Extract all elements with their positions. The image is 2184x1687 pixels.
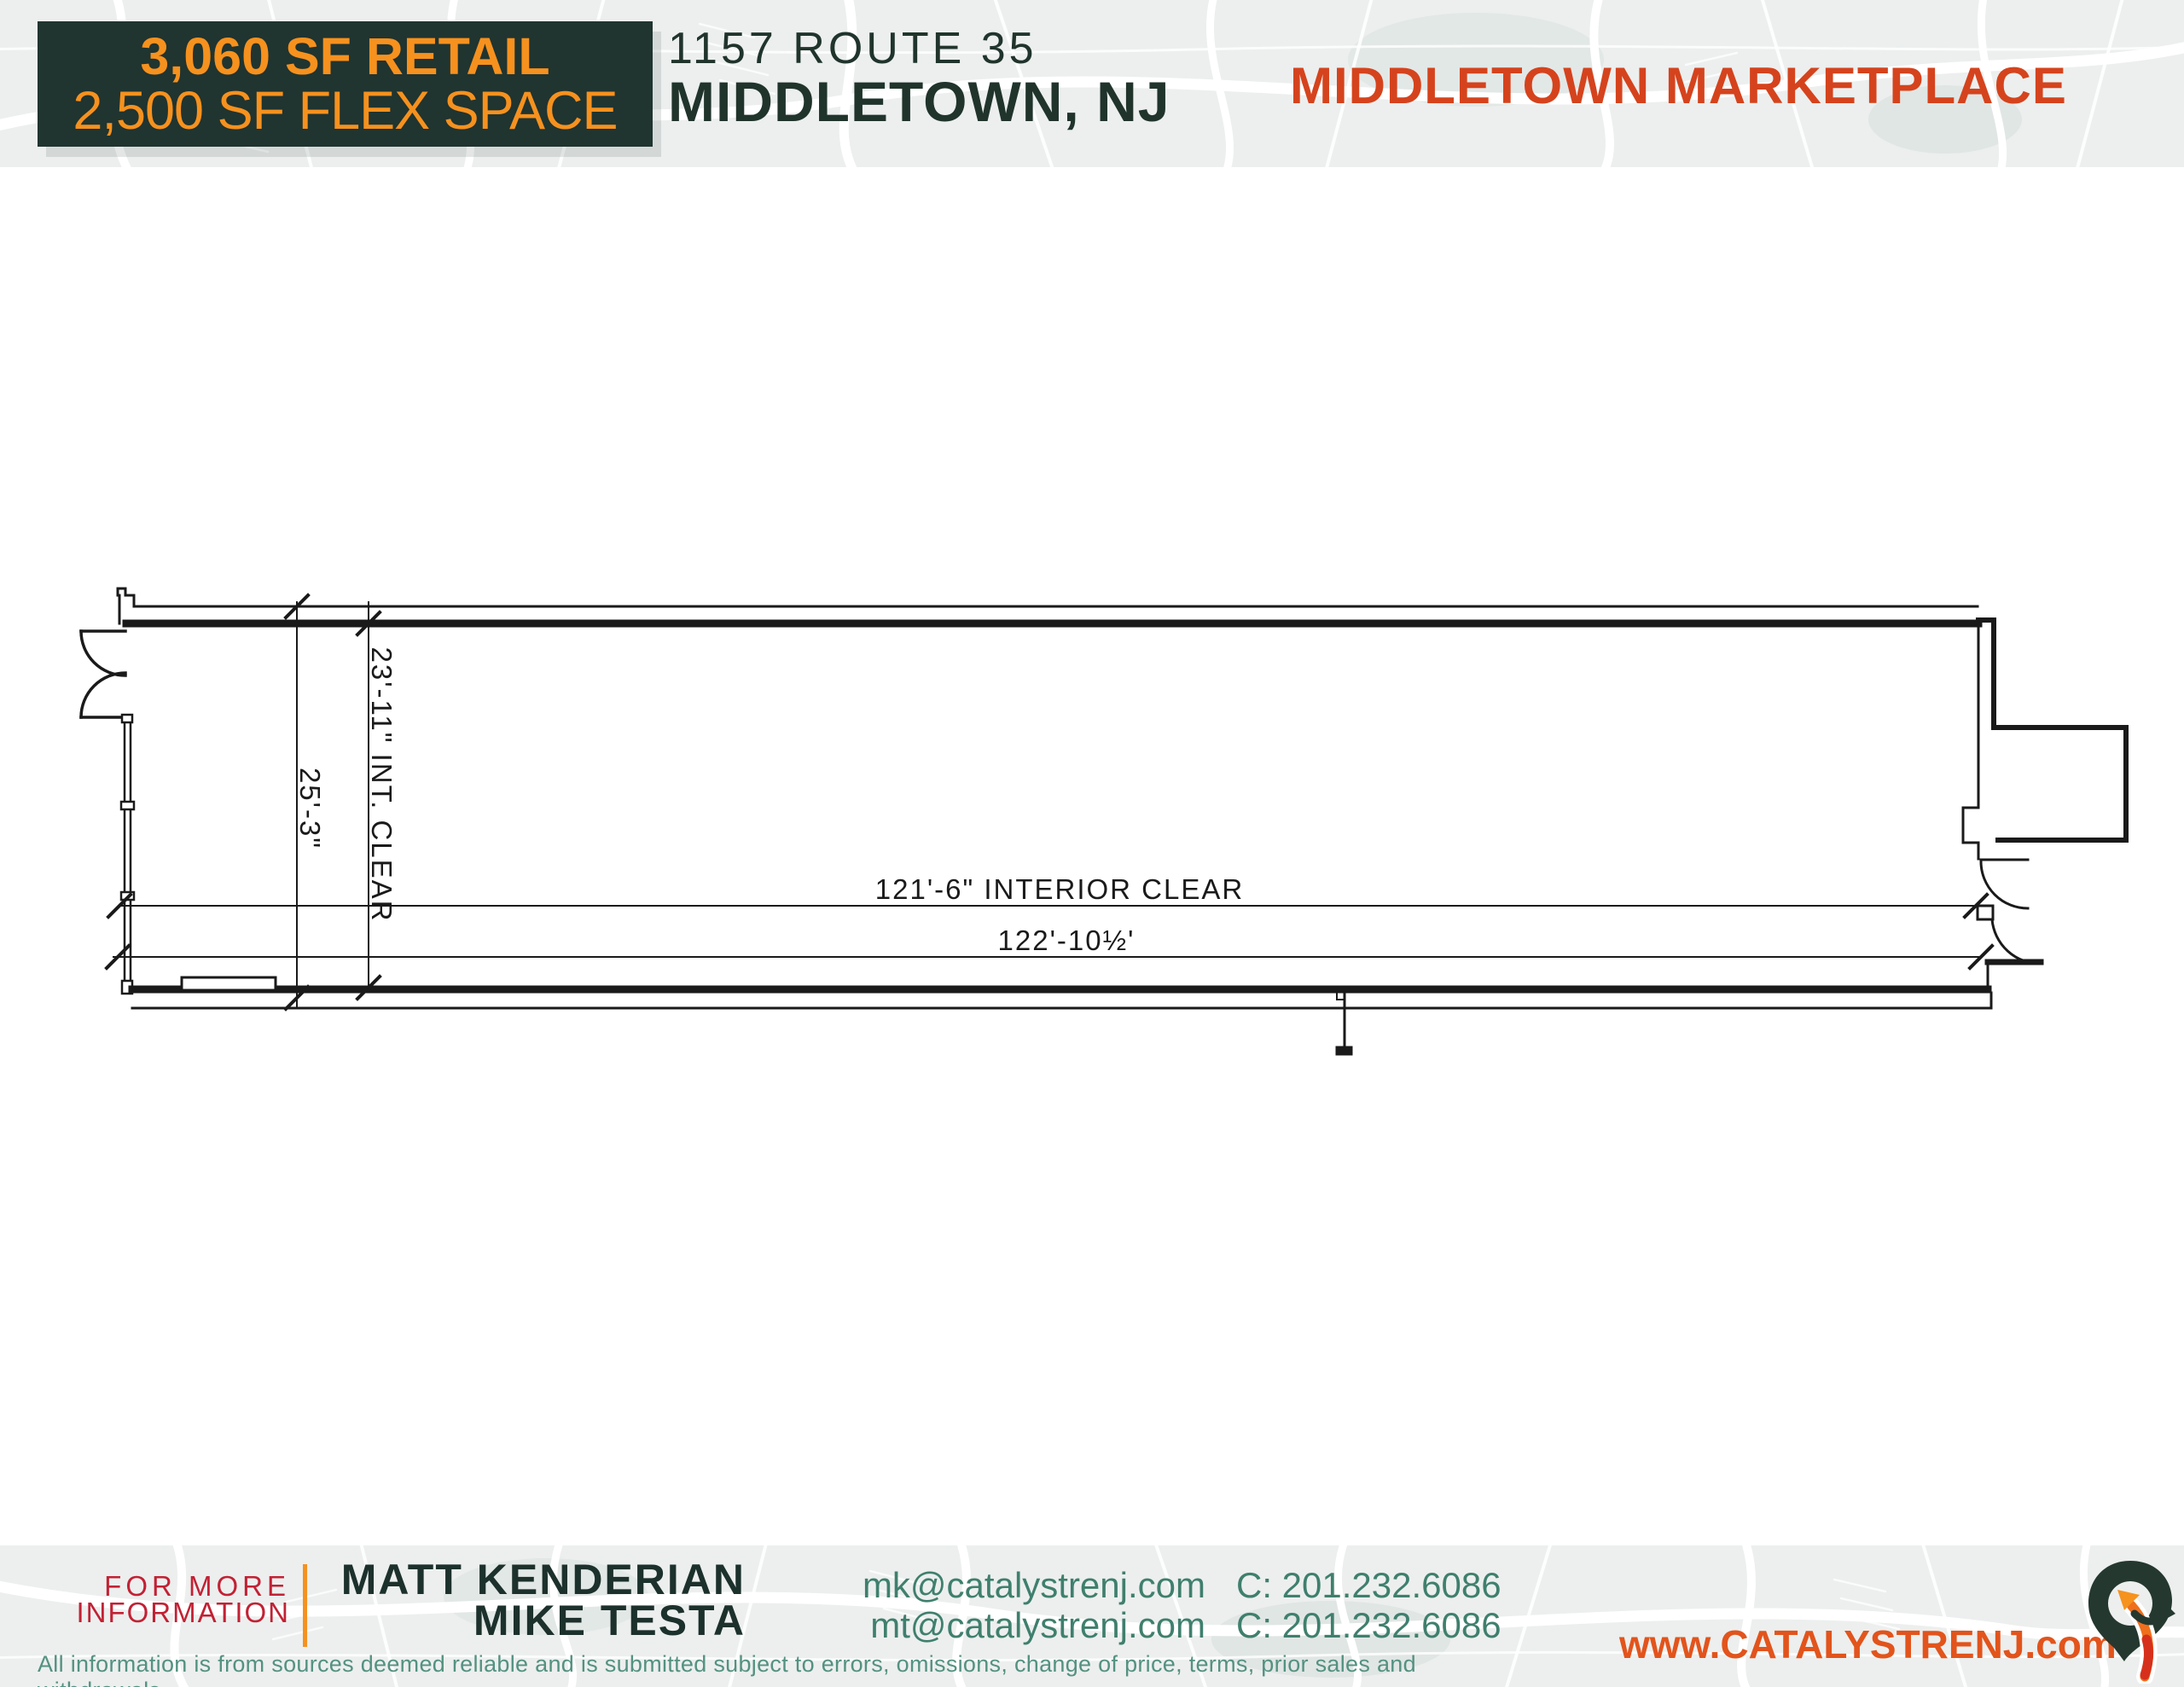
contact-row: mk@catalystrenj.com C: 201.232.6086 — [781, 1565, 1501, 1605]
right-door-swings — [1978, 860, 2041, 988]
broker-email-1[interactable]: mk@catalystrenj.com — [781, 1565, 1205, 1605]
broker-email-2[interactable]: mt@catalystrenj.com — [781, 1605, 1205, 1645]
catalyst-pin-arrow-icon — [2082, 1557, 2180, 1684]
bottom-window — [182, 977, 276, 990]
broker-name-2: MIKE TESTA — [316, 1600, 746, 1641]
broker-names: MATT KENDERIAN MIKE TESTA — [316, 1559, 746, 1641]
broker-phone-1: C: 201.232.6086 — [1236, 1565, 1501, 1605]
broker-contacts: mk@catalystrenj.com C: 201.232.6086 mt@c… — [781, 1565, 1501, 1645]
dim-vertical-interior: 23'-11" INT. CLEAR — [366, 646, 398, 922]
for-more-information-label: FOR MORE INFORMATION — [24, 1573, 290, 1626]
bottom-pipe-detail — [1337, 993, 1351, 1054]
dim-horizontal-overall: 122'-10½' — [998, 925, 1136, 956]
pilaster — [118, 588, 134, 623]
broker-name-1: MATT KENDERIAN — [316, 1559, 746, 1600]
website-link[interactable]: www.CATALYSTRENJ.com — [1619, 1621, 2084, 1667]
for-more-line1: FOR MORE — [24, 1573, 290, 1599]
contact-row: mt@catalystrenj.com C: 201.232.6086 — [781, 1605, 1501, 1645]
floor-plan: 25'-3" 23'-11" INT. CLEAR 121'-6" INTERI… — [0, 0, 2184, 1687]
entry-double-door — [81, 631, 125, 717]
footer-divider — [303, 1564, 307, 1647]
bottom-sill-line — [132, 993, 1991, 1008]
for-more-line2: INFORMATION — [24, 1599, 290, 1626]
disclaimer-text: All information is from sources deemed r… — [38, 1651, 1531, 1687]
dim-horizontal-interior: 121'-6" INTERIOR CLEAR — [875, 873, 1244, 905]
flyer-page: 3,060 SF RETAIL 2,500 SF FLEX SPACE 1157… — [0, 0, 2184, 1687]
broker-phone-2: C: 201.232.6086 — [1236, 1605, 1501, 1645]
dim-vertical-overall: 25'-3" — [294, 768, 326, 849]
vestibule — [1963, 620, 2126, 859]
